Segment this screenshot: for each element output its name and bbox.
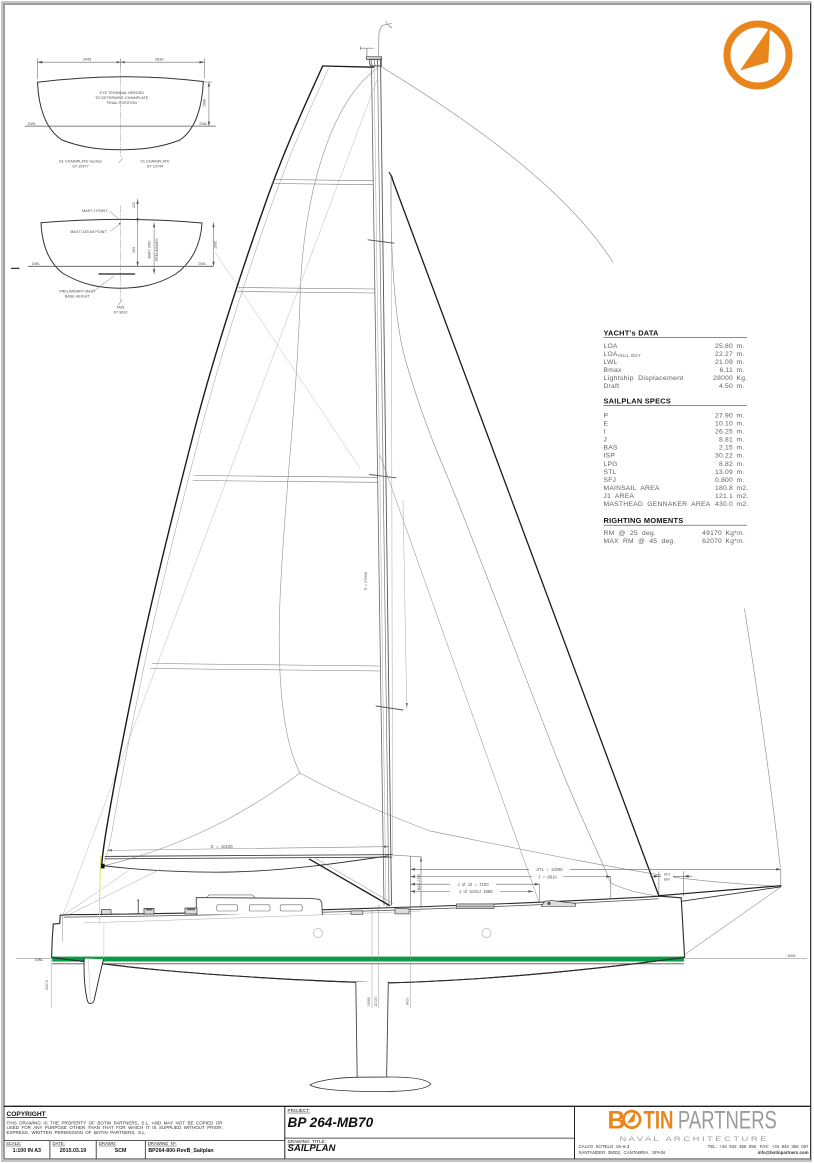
svg-text:8.81: 8.81 [719,437,733,444]
svg-text:TO DETERMINE CHAINPLATE: TO DETERMINE CHAINPLATE [95,96,149,100]
svg-text:TIN: TIN [644,1108,674,1135]
svg-text:ISP: ISP [604,453,616,460]
svg-text:J of SS/SJ 4588: J of SS/SJ 4588 [459,889,493,894]
svg-text:Kg*m.: Kg*m. [726,538,745,545]
svg-text:25.80: 25.80 [715,343,733,350]
svg-text:m.: m. [737,469,745,476]
svg-text:FINAL POSITION: FINAL POSITION [107,101,137,105]
svg-text:P: P [604,413,609,420]
svg-text:2945: 2945 [83,58,91,62]
svg-text:2015.03.19: 2015.03.19 [60,1148,87,1154]
svg-text:m.: m. [737,367,745,374]
svg-text:62070: 62070 [702,538,722,545]
svg-text:ST 10744: ST 10744 [147,164,163,168]
svg-text:LPG: LPG [604,461,618,468]
svg-text:PROJECT:: PROJECT: [288,1108,310,1113]
svg-text:LOA: LOA [604,343,618,350]
svg-text:430.0: 430.0 [715,501,733,508]
svg-text:J = 8810: J = 8810 [538,874,557,879]
svg-text:10724: 10724 [374,997,378,1007]
svg-text:BURY 2990: BURY 2990 [147,241,151,259]
svg-text:EXPRESS, WRITTEN PERMISSION: EXPRESS, WRITTEN PERMISSION OF BOTIN PAR… [7,1130,147,1135]
svg-text:CALVO SOTELO 19–6.3: CALVO SOTELO 19–6.3 [579,1144,630,1149]
svg-text:G1 CHAINPLATE Section: G1 CHAINPLATE Section [59,159,102,163]
svg-text:PRELIMINARY: PRELIMINARY [155,237,159,261]
svg-text:27.90: 27.90 [715,413,733,420]
svg-text:DRAWING Nº:: DRAWING Nº: [148,1141,177,1146]
svg-text:MAINSAIL AREA: MAINSAIL AREA [604,485,660,492]
svg-text:m.: m. [737,383,745,390]
svg-text:MAST DATUM POINT: MAST DATUM POINT [70,230,107,234]
svg-text:SAILPLAN: SAILPLAN [288,1143,337,1154]
svg-text:EYE TERMINAL NEEDED: EYE TERMINAL NEEDED [100,91,145,95]
svg-text:0.800: 0.800 [715,477,733,484]
svg-text:m.: m. [737,359,745,366]
svg-text:ST 10977: ST 10977 [72,164,88,168]
svg-text:N A V A L A R C H I T E C T: N A V A L A R C H I T E C T U R E [620,1136,768,1143]
svg-text:121.1: 121.1 [715,493,733,500]
svg-text:RM @ 25 deg.: RM @ 25 deg. [604,530,657,537]
svg-text:DWL: DWL [199,262,207,266]
svg-text:263: 263 [132,247,136,253]
svg-text:1:100 IN A3: 1:100 IN A3 [13,1148,41,1154]
svg-text:J of J4 = 7100: J of J4 = 7100 [457,882,489,887]
svg-text:I: I [604,429,606,436]
svg-text:RIGHTING MOMENTS: RIGHTING MOMENTS [604,516,684,525]
svg-text:13.09: 13.09 [715,469,733,476]
svg-text:222: 222 [132,202,136,208]
svg-text:800: 800 [664,877,670,881]
svg-text:26.25: 26.25 [715,429,733,436]
svg-text:m2.: m2. [737,485,749,492]
svg-text:TEL: +34 942 356 056 FAX: TEL: +34 942 356 056 FAX: +34 942 356 05… [708,1144,809,1149]
svg-text:DWL: DWL [28,122,36,126]
svg-text:BP264-800-RevB_Sailplan: BP264-800-RevB_Sailplan [148,1148,213,1154]
svg-text:J: J [604,437,608,444]
svg-text:P = 27900: P = 27900 [363,571,368,590]
svg-text:180.8: 180.8 [715,485,733,492]
svg-text:SCALE:: SCALE: [6,1141,21,1146]
svg-text:E = 10100: E = 10100 [211,844,233,849]
svg-text:SAILPLAN SPECS: SAILPLAN SPECS [604,397,672,406]
svg-text:m.: m. [737,421,745,428]
svg-text:LWL: LWL [604,359,618,366]
svg-text:J1 AREA: J1 AREA [604,493,635,500]
svg-text:m.: m. [737,445,745,452]
svg-text:9410: 9410 [406,998,410,1006]
svg-text:COPYRIGHT: COPYRIGHT [7,1111,46,1118]
svg-text:m.: m. [737,437,745,444]
svg-text:DRAWN:: DRAWN: [99,1141,116,1146]
svg-text:Kg.: Kg. [737,375,748,382]
svg-text:Bmax: Bmax [604,367,623,374]
svg-text:Kg*m.: Kg*m. [726,530,745,537]
svg-text:m.: m. [737,429,745,436]
svg-text:49170: 49170 [702,530,722,537]
svg-text:E: E [604,421,609,428]
svg-text:MASTHEAD GENNAKER AREA: MASTHEAD GENNAKER AREA [604,501,711,508]
svg-text:MAX RM @ 45 deg.: MAX RM @ 45 deg. [604,538,676,545]
svg-text:LOAHULL BDY: LOAHULL BDY [604,351,641,358]
svg-text:8.82: 8.82 [719,461,733,468]
svg-text:1685: 1685 [214,241,218,249]
svg-text:DWL: DWL [788,954,796,958]
svg-text:m.: m. [737,453,745,460]
svg-text:info@botinpartners.com: info@botinpartners.com [758,1150,809,1155]
svg-text:6.11: 6.11 [719,367,733,374]
svg-text:Draft: Draft [604,383,620,390]
svg-text:2.15: 2.15 [719,445,733,452]
svg-text:YACHT's DATA: YACHT's DATA [604,328,660,337]
svg-text:4.50: 4.50 [719,383,733,390]
svg-text:DATE:: DATE: [53,1141,65,1146]
svg-text:DWL: DWL [32,262,40,266]
svg-text:22274: 22274 [45,980,49,990]
svg-text:Lightship Displacement: Lightship Displacement [604,375,684,382]
svg-text:BASE HEIGHT: BASE HEIGHT [65,294,91,298]
svg-text:PRELIMINARY MAST: PRELIMINARY MAST [59,290,96,294]
svg-text:SFJ: SFJ [664,872,671,876]
svg-text:m.: m. [737,477,745,484]
svg-text:BAS: BAS [604,445,618,452]
svg-text:m.: m. [737,413,745,420]
svg-text:m2.: m2. [737,493,749,500]
svg-text:SFJ: SFJ [604,477,617,484]
svg-text:m.: m. [737,343,745,350]
svg-text:13960: 13960 [367,997,371,1007]
svg-text:FMS: FMS [117,306,125,310]
svg-text:ST 9610: ST 9610 [114,311,128,315]
svg-text:1588: 1588 [203,99,207,107]
svg-text:STL = 13080: STL = 13080 [536,867,563,872]
svg-text:m.: m. [737,461,745,468]
svg-text:m.: m. [737,351,745,358]
svg-text:2839: 2839 [155,58,163,62]
svg-text:22.27: 22.27 [715,351,733,358]
svg-text:m2.: m2. [737,501,749,508]
svg-text:DWL: DWL [35,958,43,962]
svg-text:DWL: DWL [200,122,208,126]
svg-text:PARTNERS: PARTNERS [678,1108,777,1135]
svg-text:30.22: 30.22 [715,453,733,460]
svg-text:STL: STL [604,469,617,476]
svg-text:10.10: 10.10 [715,421,733,428]
svg-text:BP 264-MB70: BP 264-MB70 [288,1115,374,1130]
svg-text:28000: 28000 [713,375,733,382]
svg-text:MAST J POINT: MAST J POINT [82,209,108,213]
svg-text:SANTANDER 39002, CANTABRIA,: SANTANDER 39002, CANTABRIA, SPAIN [579,1150,665,1155]
svg-text:V1 CHAINPLATE: V1 CHAINPLATE [140,159,170,163]
svg-text:21.09: 21.09 [715,359,733,366]
svg-text:SCM: SCM [115,1148,127,1154]
